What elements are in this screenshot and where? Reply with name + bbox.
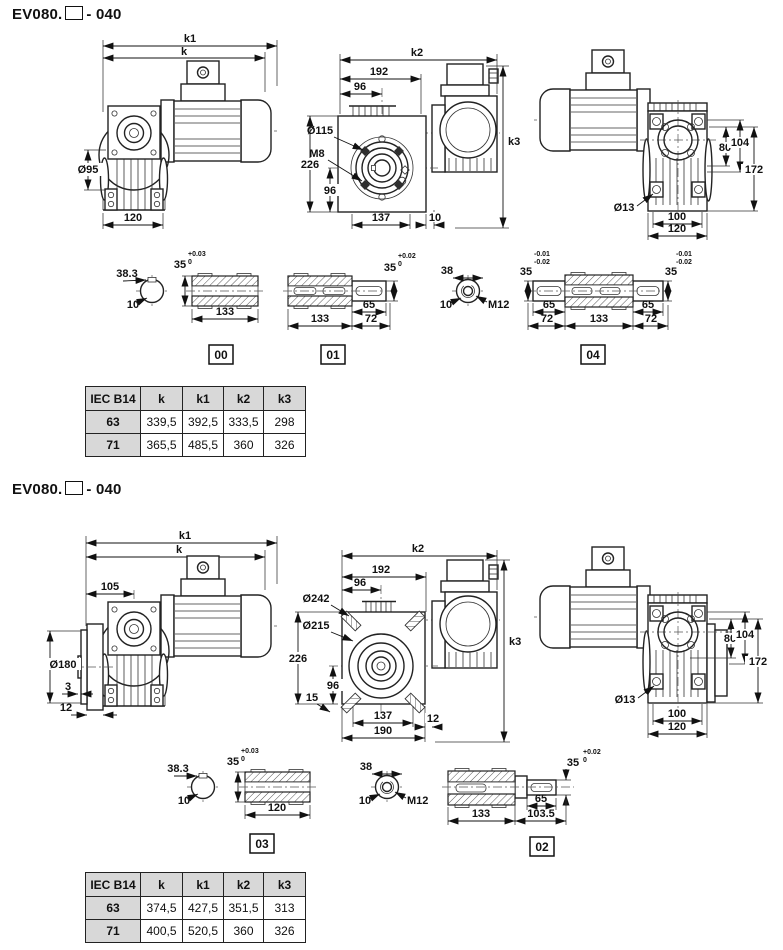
table-cell: 63 — [86, 897, 141, 920]
dim-35-right: 35 — [665, 266, 677, 278]
tolerance-low: -0.02 — [534, 259, 550, 266]
dim-bore-35: 35 — [384, 262, 396, 274]
table-cell: 365,5 — [141, 434, 183, 457]
dim-bore-35: 35 — [174, 259, 186, 271]
shaft-details-1: 38.3 10 35 +0.03 0 — [116, 251, 692, 364]
table-cell: 351,5 — [224, 897, 264, 920]
dim-k: k — [176, 544, 183, 556]
table-cell: 374,5 — [141, 897, 183, 920]
shaft-end-m12 — [452, 275, 484, 307]
hollow-shaft-01: 35 +0.02 0 65 72 133 01 — [283, 253, 416, 364]
gearbox-back-face — [640, 592, 737, 708]
table-header-cell: k — [141, 873, 183, 897]
table-cell: 485,5 — [183, 434, 224, 457]
view-front-2: k2 192 96 Ø242 Ø215 226 96 15 137 — [284, 543, 521, 742]
dimension-table-2: IEC B14 k k1 k2 k3 63 374,5 427,5 351,5 … — [85, 872, 306, 943]
dim-100: 100 — [668, 708, 686, 720]
table-cell: 71 — [86, 434, 141, 457]
tolerance-high: +0.02 — [398, 253, 416, 260]
dim-96-bottom: 96 — [324, 185, 336, 197]
dim-35-left: 35 — [520, 266, 532, 278]
double-shaft-04: 35 -0.01 -0.02 35 -0.01 -0.02 65 72 133 — [520, 251, 692, 364]
dim-190: 190 — [374, 725, 392, 737]
table-header-cell: k3 — [264, 873, 306, 897]
dim-width-120: 120 — [124, 212, 142, 224]
variant-tag-02: 02 — [535, 840, 549, 854]
dim-flange-242: Ø242 — [303, 593, 330, 605]
dim-bolt-circle-215: Ø215 — [303, 620, 330, 632]
table-cell: 71 — [86, 920, 141, 943]
table-cell: 427,5 — [183, 897, 224, 920]
tolerance-high: -0.01 — [534, 251, 550, 258]
tolerance-low: 0 — [188, 259, 192, 266]
dim-65: 65 — [535, 793, 547, 805]
section2-title: EV080.- 040 — [12, 481, 122, 498]
dim-72: 72 — [365, 313, 377, 325]
shaft-details-2: 38.3 10 35 +0.03 0 — [167, 748, 601, 856]
table-cell: 339,5 — [141, 411, 183, 434]
dim-65: 65 — [363, 299, 375, 311]
variant-tag-00: 00 — [214, 348, 228, 362]
dim-96-bottom: 96 — [327, 680, 339, 692]
dim-len-133: 133 — [590, 313, 608, 325]
dim-137: 137 — [372, 212, 390, 224]
tolerance-high: +0.03 — [188, 251, 206, 258]
dim-pilot-3: 3 — [65, 681, 71, 693]
table-cell: 392,5 — [183, 411, 224, 434]
view-side-1: k1 k Ø95 120 — [74, 33, 277, 229]
dim-chamfer-15: 15 — [306, 692, 318, 704]
dim-38: 38 — [360, 761, 372, 773]
tolerance-low: 0 — [583, 757, 587, 764]
view-rear-2: 80 104 172 Ø13 100 120 — [534, 547, 771, 738]
dim-38-3: 38.3 — [167, 763, 188, 775]
hollow-shaft-03: 35 +0.03 0 120 03 — [227, 748, 317, 853]
variant-tag-03: 03 — [255, 837, 269, 851]
dim-gap-10: 10 — [429, 212, 441, 224]
table-header-row: IEC B14 k k1 k2 k3 — [86, 387, 306, 411]
table-cell: 63 — [86, 411, 141, 434]
dim-key-10: 10 — [359, 795, 371, 807]
motor-silhouette — [155, 556, 277, 657]
view-front-1: k2 192 96 Ø115 M8 226 96 137 — [296, 47, 520, 229]
dim-k2: k2 — [411, 47, 423, 59]
dim-96-top: 96 — [354, 577, 366, 589]
dim-k3: k3 — [508, 136, 520, 148]
tolerance-high: -0.01 — [676, 251, 692, 258]
motor-silhouette — [534, 50, 656, 151]
tolerance-low: -0.02 — [676, 259, 692, 266]
dim-172: 172 — [749, 656, 767, 668]
dim-len-133: 133 — [216, 306, 234, 318]
table-header-cell: IEC B14 — [86, 873, 141, 897]
table-header-cell: k — [141, 387, 183, 411]
dim-120: 120 — [668, 223, 686, 235]
dim-hole-13: Ø13 — [615, 694, 636, 706]
gearbox-back-face — [640, 100, 716, 216]
dim-120: 120 — [668, 721, 686, 733]
dim-thickness-12: 12 — [60, 702, 72, 714]
dim-len-133: 133 — [311, 313, 329, 325]
table-cell: 326 — [264, 920, 306, 943]
dim-226: 226 — [289, 653, 307, 665]
table-header-row: IEC B14 k k1 k2 k3 — [86, 873, 306, 897]
gearbox-silhouette — [99, 602, 169, 706]
view-side-2: k1 k 105 Ø180 3 12 — [46, 530, 277, 715]
dim-k3: k3 — [509, 636, 521, 648]
tolerance-high: +0.02 — [583, 749, 601, 756]
view-rear-1: 80 104 172 Ø13 100 120 — [534, 50, 767, 240]
dim-bore-35: 35 — [227, 756, 239, 768]
dim-35: 35 — [567, 757, 579, 769]
table-cell: 333,5 — [224, 411, 264, 434]
tolerance-low: 0 — [241, 756, 245, 763]
tolerance-high: +0.03 — [241, 748, 259, 755]
variant-tag-01: 01 — [326, 348, 340, 362]
table-row: 71 400,5 520,5 360 326 — [86, 920, 306, 943]
section1-title: EV080.- 040 — [12, 6, 122, 23]
dim-65-left: 65 — [543, 299, 555, 311]
dim-k1: k1 — [184, 33, 196, 45]
dim-104: 104 — [736, 629, 755, 641]
thread-m12: M12 — [488, 299, 509, 311]
dim-65-right: 65 — [642, 299, 654, 311]
dim-flange-180: Ø180 — [50, 659, 77, 671]
dim-105: 105 — [101, 581, 119, 593]
table-cell: 520,5 — [183, 920, 224, 943]
dim-k2: k2 — [412, 543, 424, 555]
model-code-1: EV080. — [12, 6, 62, 23]
hollow-shaft-00: 35 +0.03 0 133 00 — [174, 251, 264, 364]
dim-len-120: 120 — [268, 802, 286, 814]
motor-silhouette — [155, 61, 277, 162]
size-code-1: - 040 — [86, 6, 121, 23]
dim-192: 192 — [370, 66, 388, 78]
dim-72-left: 72 — [541, 313, 553, 325]
dim-len-133: 133 — [472, 808, 490, 820]
table-row: 63 374,5 427,5 351,5 313 — [86, 897, 306, 920]
variant-placeholder-box-2 — [65, 481, 83, 495]
table-cell: 360 — [224, 434, 264, 457]
motor-silhouette — [534, 547, 656, 648]
solid-shaft-02: 35 +0.02 0 65 133 103.5 02 — [442, 749, 601, 856]
table-cell: 400,5 — [141, 920, 183, 943]
dim-100: 100 — [668, 211, 686, 223]
tolerance-low: 0 — [398, 261, 402, 268]
table-cell: 360 — [224, 920, 264, 943]
table-header-cell: k2 — [224, 387, 264, 411]
dim-gap-12: 12 — [427, 713, 439, 725]
variant-placeholder-box-1 — [65, 6, 83, 20]
dim-hub-diameter: Ø95 — [78, 164, 99, 176]
shaft-end-m12 — [371, 771, 403, 803]
dim-72-right: 72 — [645, 313, 657, 325]
dim-bolt-circle: Ø115 — [307, 125, 333, 137]
dim-k: k — [181, 46, 188, 58]
dim-103-5: 103.5 — [527, 808, 555, 820]
dim-k1: k1 — [179, 530, 191, 542]
size-code-2: - 040 — [86, 481, 121, 498]
dim-key-10: 10 — [127, 299, 139, 311]
table-header-cell: IEC B14 — [86, 387, 141, 411]
table-row: 71 365,5 485,5 360 326 — [86, 434, 306, 457]
dimension-table-1: IEC B14 k k1 k2 k3 63 339,5 392,5 333,5 … — [85, 386, 306, 457]
table-header-cell: k2 — [224, 873, 264, 897]
gearbox-face — [328, 88, 438, 216]
table-cell: 313 — [264, 897, 306, 920]
dim-226: 226 — [301, 159, 319, 171]
dim-key-10: 10 — [440, 299, 452, 311]
table-header-cell: k3 — [264, 387, 306, 411]
gearbox-silhouette — [99, 106, 169, 210]
dim-38: 38 — [441, 265, 453, 277]
dim-hole-13: Ø13 — [614, 202, 635, 214]
drawing-page: EV080.- 040 EV080.- 040 — [0, 0, 783, 950]
thread-m12: M12 — [407, 795, 428, 807]
table-row: 63 339,5 392,5 333,5 298 — [86, 411, 306, 434]
variant-tag-04: 04 — [586, 348, 600, 362]
dim-104: 104 — [731, 137, 750, 149]
dim-172: 172 — [745, 164, 763, 176]
technical-drawing: k1 k Ø95 120 — [0, 0, 783, 950]
table-header-cell: k1 — [183, 873, 224, 897]
dim-38-3: 38.3 — [116, 268, 137, 280]
model-code-2: EV080. — [12, 481, 62, 498]
table-header-cell: k1 — [183, 387, 224, 411]
table-cell: 326 — [264, 434, 306, 457]
gearbox-flange-face — [329, 585, 438, 716]
dim-137: 137 — [374, 710, 392, 722]
dim-192: 192 — [372, 564, 390, 576]
dim-key-10: 10 — [178, 795, 190, 807]
table-cell: 298 — [264, 411, 306, 434]
dim-96-top: 96 — [354, 81, 366, 93]
